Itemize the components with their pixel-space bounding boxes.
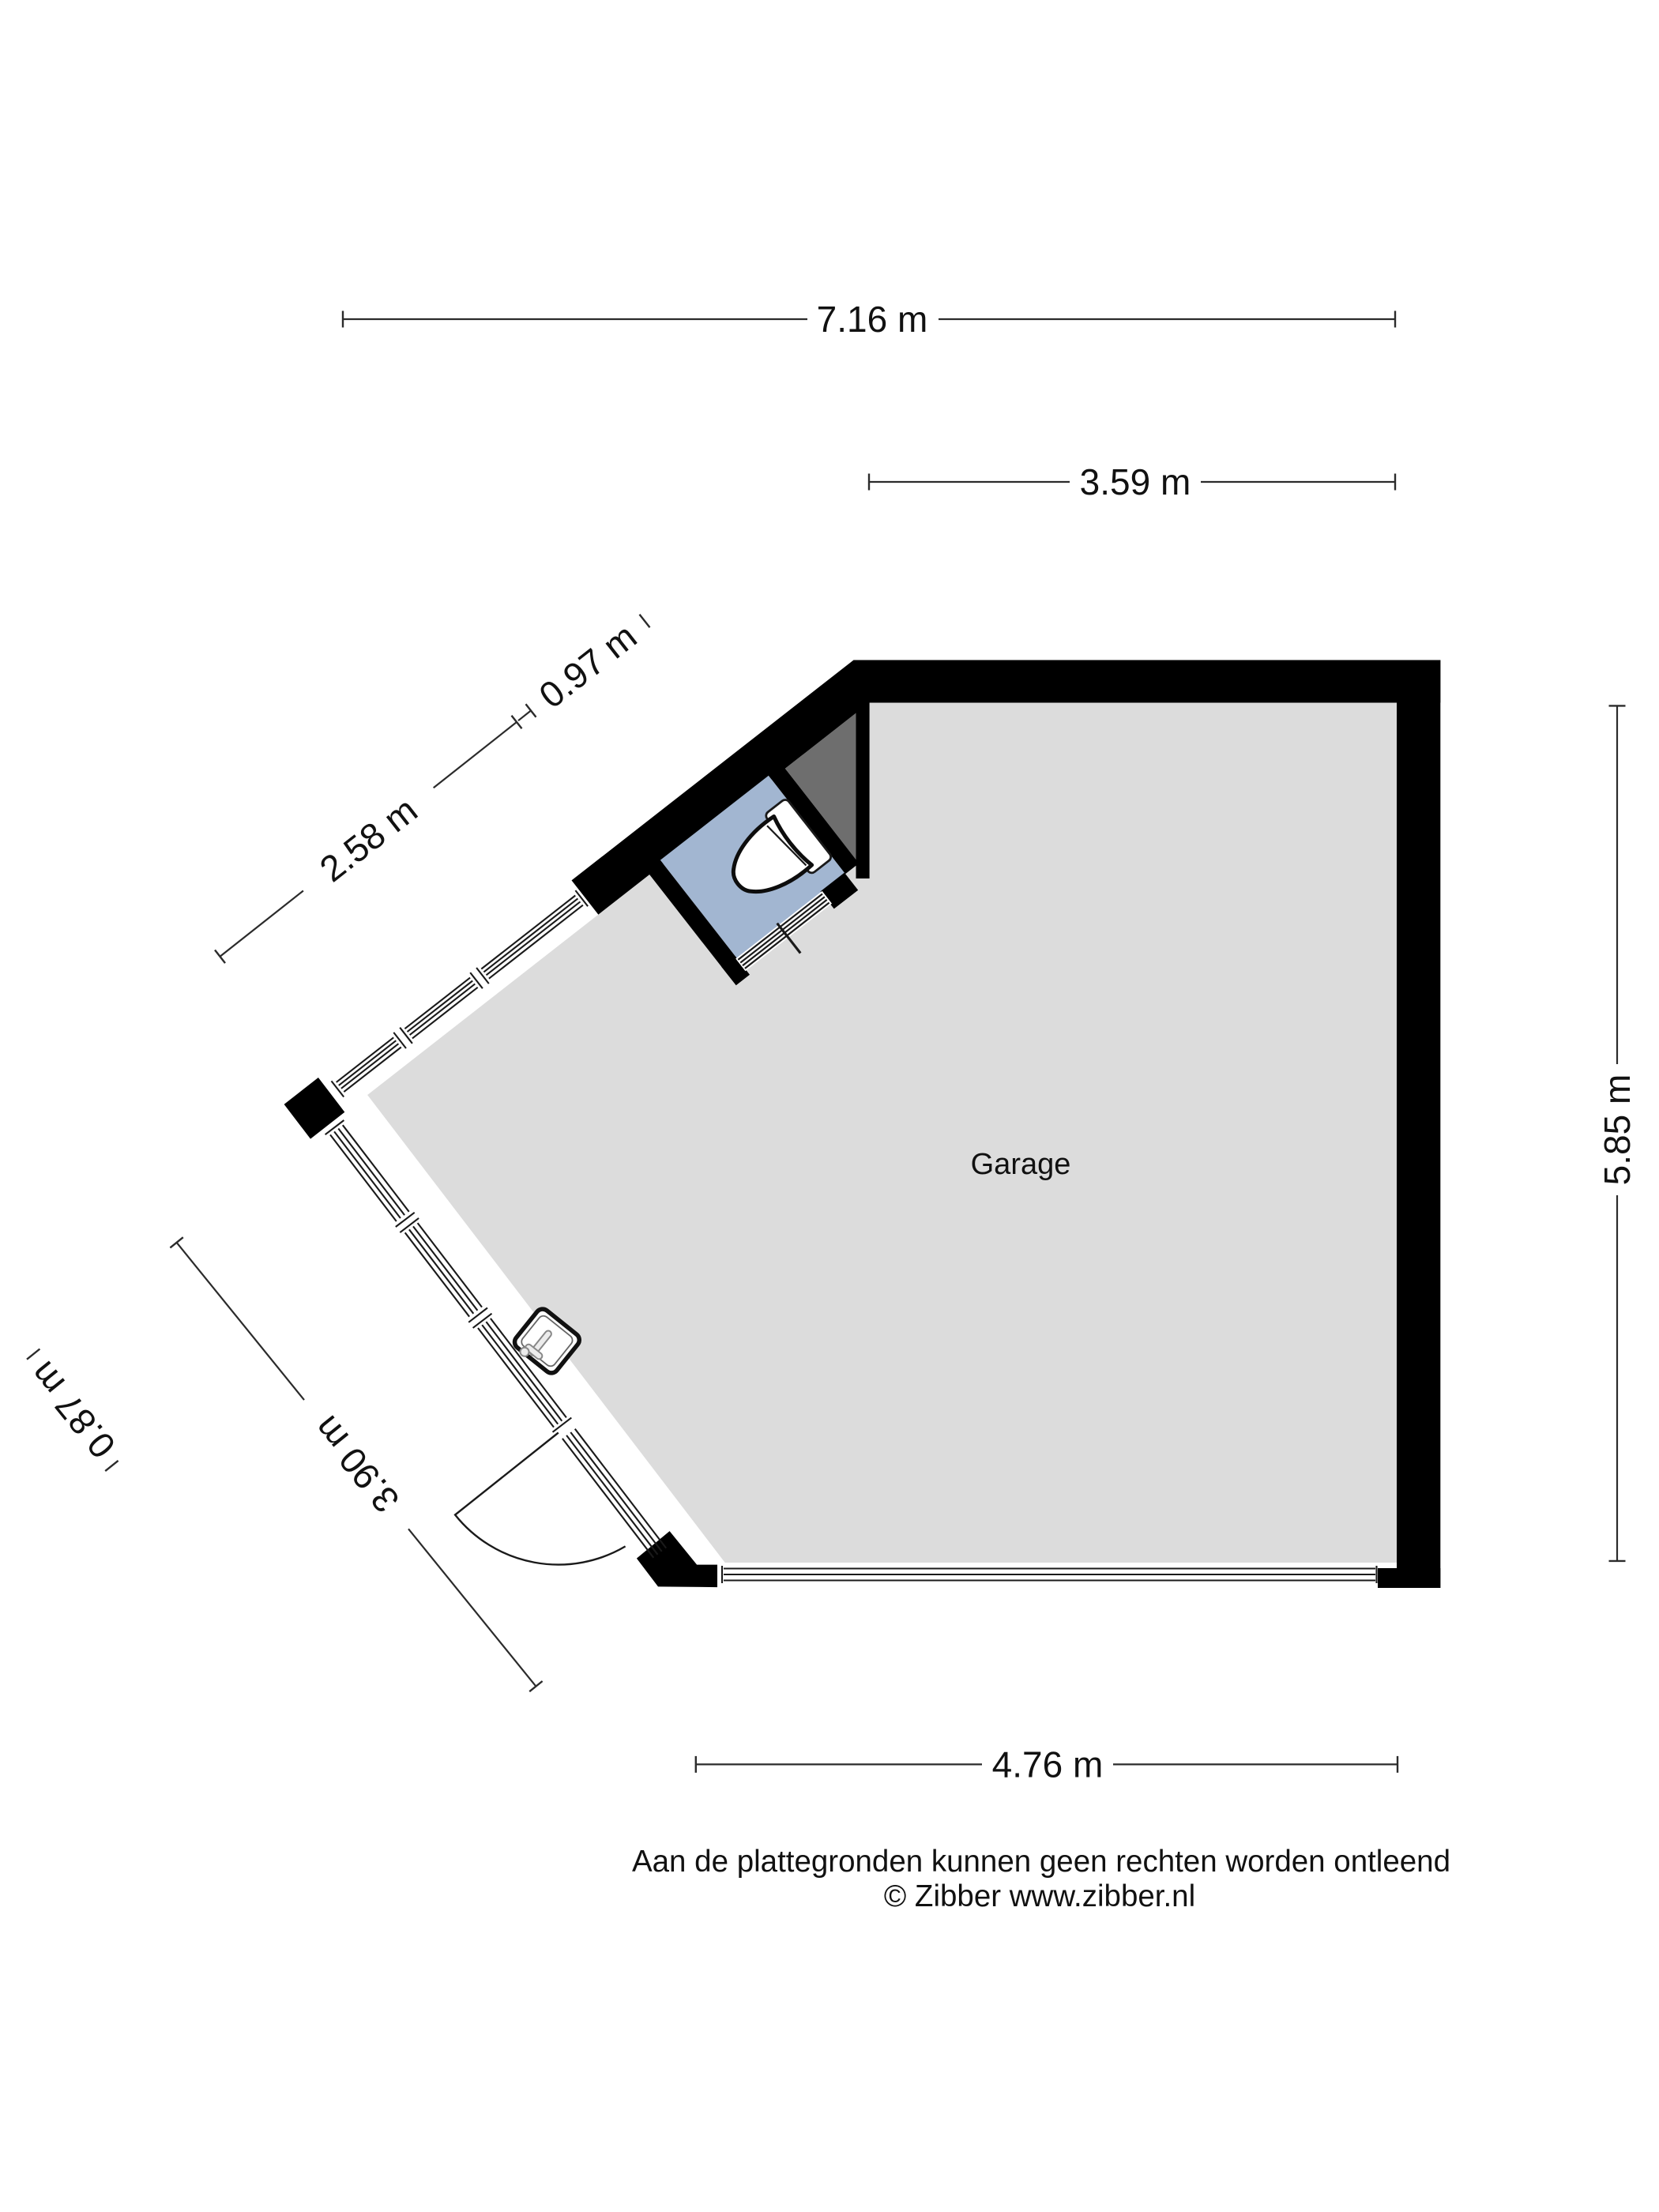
svg-text:© Zibber www.zibber.nl: © Zibber www.zibber.nl: [884, 1879, 1195, 1913]
svg-text:4.76 m: 4.76 m: [992, 1744, 1104, 1785]
svg-text:5.85 m: 5.85 m: [1597, 1074, 1638, 1186]
svg-text:7.16 m: 7.16 m: [817, 299, 928, 340]
svg-text:Aan de plattegronden kunnen ge: Aan de plattegronden kunnen geen rechten…: [632, 1845, 1450, 1879]
svg-text:Garage: Garage: [971, 1148, 1071, 1181]
svg-text:3.59 m: 3.59 m: [1080, 461, 1191, 502]
